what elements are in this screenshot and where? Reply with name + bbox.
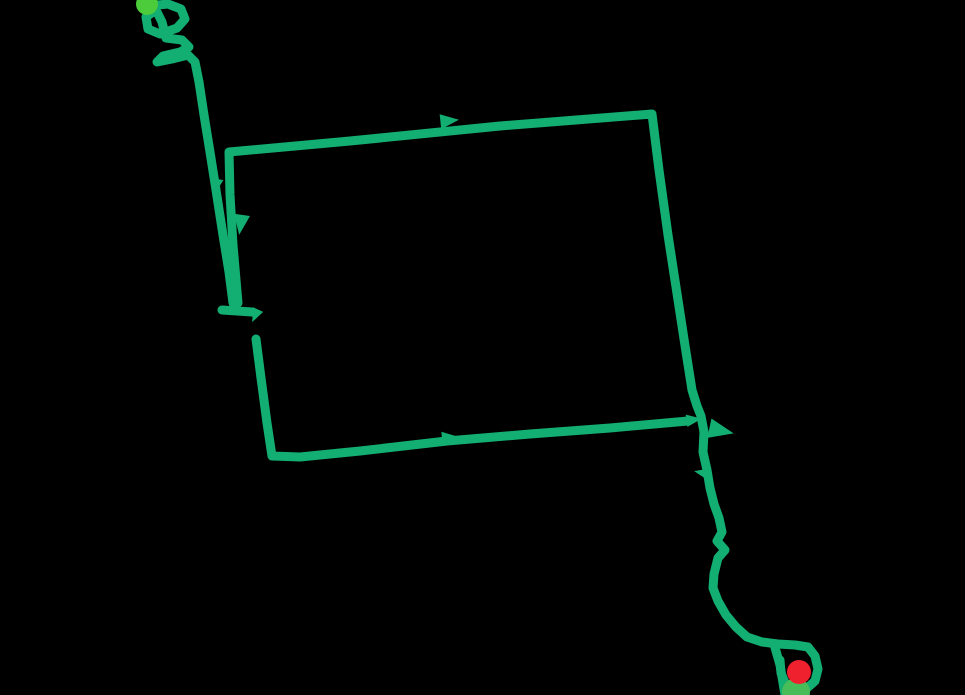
map-background (0, 0, 965, 695)
end-marker (787, 660, 811, 684)
route-map-stage (0, 0, 965, 695)
route-segment-turnaround-cap (222, 310, 252, 312)
route-map-canvas (0, 0, 965, 695)
